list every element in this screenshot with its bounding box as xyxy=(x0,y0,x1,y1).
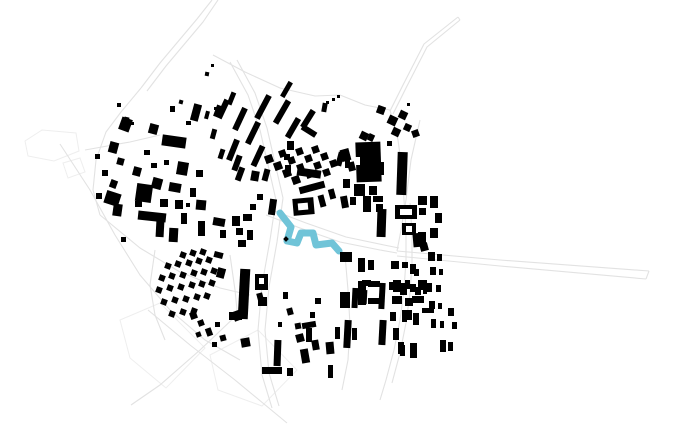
building-footprint xyxy=(102,170,108,176)
building-footprint xyxy=(112,203,123,216)
building-footprint xyxy=(287,141,294,150)
building-footprint xyxy=(440,340,446,352)
building-footprint xyxy=(402,310,407,322)
building-footprint xyxy=(354,184,365,196)
building-footprint xyxy=(393,328,399,340)
building-footprint xyxy=(240,337,250,347)
building-footprint xyxy=(351,288,358,308)
building-footprint xyxy=(361,290,368,304)
building-footprint xyxy=(295,323,302,330)
building-footprint xyxy=(315,298,321,304)
building-footprint xyxy=(135,183,153,203)
building-footprint xyxy=(176,161,189,176)
building-footprint xyxy=(181,213,187,224)
building-footprint xyxy=(243,214,252,221)
building-footprint xyxy=(186,203,190,207)
building-footprint xyxy=(169,228,179,242)
building-courtyard xyxy=(259,278,264,284)
building-footprint xyxy=(238,240,246,247)
building-footprint xyxy=(220,230,226,238)
building-footprint xyxy=(405,298,413,306)
building-footprint xyxy=(135,201,142,207)
building-footprint xyxy=(257,194,263,200)
building-footprint xyxy=(175,200,183,209)
building-footprint xyxy=(325,342,334,355)
building-footprint xyxy=(405,280,410,289)
building-footprint xyxy=(343,179,350,188)
building-footprint xyxy=(144,150,150,155)
building-footprint xyxy=(306,328,312,342)
building-footprint xyxy=(428,252,435,261)
building-footprint xyxy=(95,154,100,159)
building-footprint xyxy=(198,221,205,236)
building-footprint xyxy=(431,319,436,328)
building-footprint xyxy=(212,342,217,347)
building-footprint xyxy=(335,327,340,339)
building-footprint xyxy=(393,280,401,292)
building-footprint xyxy=(274,340,282,366)
building-footprint xyxy=(247,230,253,240)
building-footprint xyxy=(392,296,402,304)
building-footprint xyxy=(448,308,454,316)
building-footprint xyxy=(378,320,386,345)
building-footprint xyxy=(215,322,220,327)
building-footprint xyxy=(430,267,436,275)
building-footprint xyxy=(430,196,438,208)
building-footprint xyxy=(363,196,371,212)
building-footprint xyxy=(352,328,357,340)
building-footprint xyxy=(170,106,175,112)
building-footprint xyxy=(410,343,417,358)
building-footprint xyxy=(402,262,408,268)
building-footprint xyxy=(415,287,421,295)
building-footprint xyxy=(229,312,242,320)
building-footprint xyxy=(340,252,352,262)
building-footprint xyxy=(117,103,121,107)
building-footprint xyxy=(232,216,240,226)
building-courtyard xyxy=(406,226,412,232)
building-courtyard xyxy=(298,203,309,211)
building-footprint xyxy=(439,269,443,275)
building-footprint xyxy=(121,237,126,242)
building-footprint xyxy=(236,228,243,235)
building-footprint xyxy=(413,313,419,325)
map-canvas xyxy=(0,0,700,433)
building-footprint xyxy=(396,152,407,195)
building-footprint xyxy=(326,101,329,104)
figure-ground-map xyxy=(0,0,700,433)
building-footprint xyxy=(423,280,427,294)
building-footprint xyxy=(440,321,444,328)
building-footprint xyxy=(390,312,396,321)
building-footprint xyxy=(436,285,441,292)
building-footprint xyxy=(377,209,387,237)
building-footprint xyxy=(283,292,288,299)
building-footprint xyxy=(250,204,256,210)
building-footprint xyxy=(337,95,340,98)
building-footprint xyxy=(437,254,442,261)
building-footprint xyxy=(164,160,169,165)
building-footprint xyxy=(369,186,377,195)
building-footprint xyxy=(262,367,282,374)
building-footprint xyxy=(332,98,335,101)
building-footprint xyxy=(412,296,424,303)
building-footprint xyxy=(368,298,380,304)
building-footprint xyxy=(328,365,333,378)
building-footprint xyxy=(429,301,435,309)
building-footprint xyxy=(387,141,392,146)
building-footprint xyxy=(196,200,207,211)
building-footprint xyxy=(407,103,410,106)
building-footprint xyxy=(186,121,191,125)
building-footprint xyxy=(151,163,157,168)
building-footprint xyxy=(350,197,356,205)
building-footprint xyxy=(400,345,405,356)
building-footprint xyxy=(368,260,374,270)
building-footprint xyxy=(205,72,210,77)
building-footprint xyxy=(427,283,432,292)
building-footprint xyxy=(377,162,384,175)
building-footprint xyxy=(343,320,351,348)
building-footprint xyxy=(358,258,365,272)
building-footprint xyxy=(448,342,453,351)
building-footprint xyxy=(250,170,260,181)
building-footprint xyxy=(373,196,383,202)
building-footprint xyxy=(190,188,196,197)
building-footprint xyxy=(278,322,282,327)
building-footprint xyxy=(96,193,102,199)
building-footprint xyxy=(414,269,419,276)
building-footprint xyxy=(156,220,165,237)
building-footprint xyxy=(452,322,457,329)
building-footprint xyxy=(287,368,293,376)
building-footprint xyxy=(211,64,214,67)
building-footprint xyxy=(362,280,371,286)
building-footprint xyxy=(196,170,203,177)
building-courtyard xyxy=(400,209,412,215)
building-footprint xyxy=(438,303,442,309)
building-footprint xyxy=(435,213,442,223)
building-footprint xyxy=(310,312,315,318)
building-footprint xyxy=(340,292,350,308)
building-footprint xyxy=(391,261,399,269)
building-footprint xyxy=(418,196,427,205)
building-footprint xyxy=(160,199,168,207)
building-courtyard xyxy=(355,157,360,165)
building-footprint xyxy=(419,208,426,215)
building-footprint xyxy=(430,228,438,238)
